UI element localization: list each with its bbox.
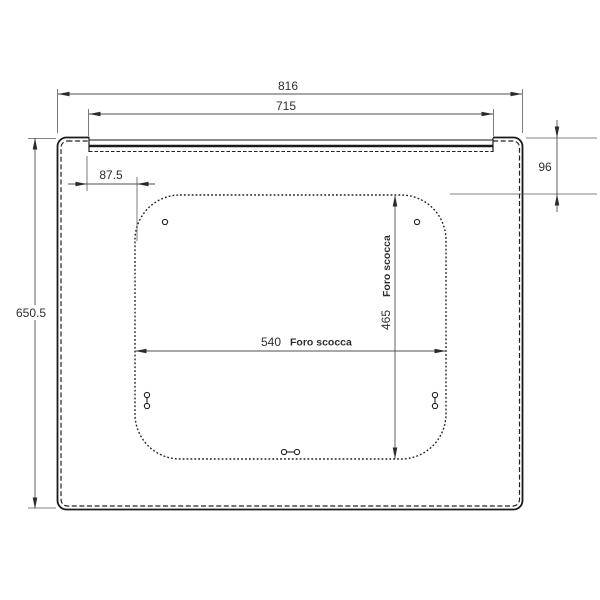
dim-label-540: 540 xyxy=(261,335,281,349)
panel-outer-edge xyxy=(58,138,523,510)
dim-label-465: 465 xyxy=(379,310,393,330)
slot-hole xyxy=(144,403,149,408)
technical-drawing: 816 715 650.5 96 87.5 xyxy=(0,0,600,600)
hole-top-left xyxy=(162,219,167,224)
dim-top-offset: 96 xyxy=(450,120,597,212)
panel-outline xyxy=(58,135,523,510)
dim-cutout-width: 540 Foro scocca xyxy=(135,335,446,353)
arrow-right xyxy=(435,349,447,354)
arrow-right xyxy=(511,92,523,97)
dim-note-foro-scocca-horizontal: Foro scocca xyxy=(290,337,352,349)
dim-label-96: 96 xyxy=(538,160,552,174)
arrow-right xyxy=(482,112,494,117)
arrow-left xyxy=(89,112,101,117)
dim-overall-height: 650.5 xyxy=(9,138,56,509)
body-cutout xyxy=(135,195,446,459)
cutout-dotted-outline xyxy=(135,195,446,459)
slot-hole xyxy=(432,392,437,397)
dim-glass-width: 715 xyxy=(89,99,494,136)
arrow-top xyxy=(33,138,38,150)
arrow-top xyxy=(393,195,398,207)
slot-hole xyxy=(144,392,149,397)
arrow-bottom xyxy=(555,194,560,206)
dim-cutout-height: 465 Foro scocca xyxy=(379,195,397,459)
dim-label-715: 715 xyxy=(276,99,296,113)
drawing-canvas: 816 715 650.5 96 87.5 xyxy=(0,0,600,600)
slot-hole xyxy=(432,403,437,408)
arrow-bottom xyxy=(33,498,38,510)
arrow-top xyxy=(555,127,560,139)
arrow-left xyxy=(76,182,88,187)
panel-inner-dashed-seal xyxy=(61,141,520,506)
dim-label-650-5: 650.5 xyxy=(16,306,46,320)
slot-bottom-left xyxy=(144,392,149,408)
dim-note-foro-scocca-vertical: Foro scocca xyxy=(381,235,393,297)
band-background xyxy=(90,135,494,151)
arrow-bottom xyxy=(393,448,398,460)
slot-hole xyxy=(281,449,286,454)
arrow-right xyxy=(137,182,149,187)
arrow-left xyxy=(58,92,70,97)
dim-label-816: 816 xyxy=(278,79,298,93)
dim-side-offset: 87.5 xyxy=(68,156,155,241)
slot-bottom-center xyxy=(281,449,299,454)
hole-top-right xyxy=(414,219,419,224)
slot-hole xyxy=(294,449,299,454)
slot-bottom-right xyxy=(432,392,437,408)
dim-label-87-5: 87.5 xyxy=(99,168,123,182)
arrow-left xyxy=(135,349,147,354)
